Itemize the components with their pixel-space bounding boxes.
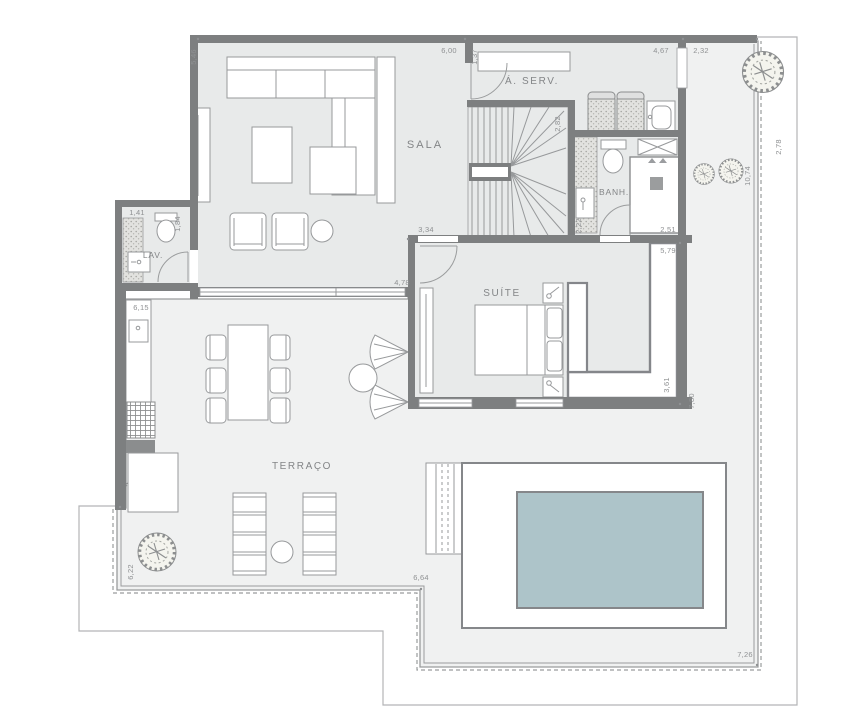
- tree-icon: [742, 51, 783, 92]
- room-label-sala: SALA: [407, 139, 443, 151]
- dim-5-79: 5,79: [660, 246, 675, 255]
- shower-icon: [630, 157, 680, 233]
- room-label-lav: LAV.: [143, 250, 163, 260]
- toilet-icon: [603, 149, 623, 173]
- wall-suite-left: [408, 242, 415, 409]
- dim-10-74: 10,74: [743, 166, 752, 186]
- lounger-table-icon: [271, 541, 293, 563]
- dim-1-84: 1,84: [173, 216, 182, 231]
- shelf-counter: [478, 52, 570, 71]
- room-label-terraco: TERRAÇO: [272, 461, 332, 472]
- bush-icon: [719, 159, 743, 183]
- sofa-icon: [227, 57, 375, 98]
- dim-6-64: 6,64: [413, 573, 428, 582]
- dim-7-26: 7,26: [737, 650, 752, 659]
- dim-3-34: 3,34: [418, 225, 433, 234]
- dim-2-51: 2,51: [660, 225, 675, 234]
- outdoor-sink-icon: [129, 320, 148, 342]
- dresser-icon: [568, 283, 587, 372]
- pool: [517, 492, 703, 608]
- dim-2-22: 2,22: [574, 218, 583, 233]
- dim-4-67: 4,67: [653, 46, 668, 55]
- dim-7-80: 7,80: [687, 393, 696, 408]
- tree-icon: [138, 533, 176, 571]
- lounger-icon: [303, 493, 336, 575]
- pillow-icon: [547, 341, 562, 371]
- dryer-icon: [617, 99, 644, 131]
- dim-6-15: 6,15: [133, 303, 148, 312]
- coffee-table-icon: [252, 127, 292, 183]
- lounger-icon: [233, 493, 266, 575]
- wall-terrace-left: [115, 283, 126, 510]
- floor-plan-canvas: SALA Á. SERV. BANH. LAV. SUÍTE TERRAÇO 5…: [0, 0, 847, 720]
- counter-end-block: [126, 440, 155, 453]
- sofa-side-console: [377, 57, 395, 203]
- dim-1-37: 1,37: [470, 49, 479, 64]
- outdoor-counter: [126, 300, 151, 402]
- dim-3-61: 3,61: [662, 377, 671, 392]
- terrace-door: [677, 48, 687, 88]
- dim-6-00: 6,00: [441, 46, 456, 55]
- dim-2-32: 2,32: [693, 46, 708, 55]
- wall-suite-right: [677, 235, 687, 409]
- side-table-icon: [311, 220, 333, 242]
- pouf-icon: [310, 147, 356, 194]
- dim-1-41: 1,41: [129, 208, 144, 217]
- washer-icon: [588, 99, 615, 131]
- nightstand-icon: [543, 283, 563, 303]
- island-table-icon: [128, 453, 178, 512]
- dining-table-icon: [228, 325, 268, 420]
- wall-top: [190, 35, 757, 43]
- bush-icon: [694, 164, 715, 185]
- bath-sink-icon: [576, 188, 594, 218]
- grill-icon: [127, 402, 155, 438]
- dim-5-46: 5,46: [189, 49, 198, 64]
- floor-plan-page: SALA Á. SERV. BANH. LAV. SUÍTE TERRAÇO 5…: [0, 0, 847, 720]
- dim-6-22: 6,22: [126, 564, 135, 579]
- pillow-icon: [547, 308, 562, 338]
- room-label-suite: SUÍTE: [483, 286, 520, 299]
- pool-area: [426, 463, 726, 628]
- dim-4-78: 4,78: [394, 278, 409, 287]
- room-label-aserv: Á. SERV.: [505, 74, 559, 87]
- round-table-icon: [349, 364, 377, 392]
- room-label-banh: BANH.: [599, 187, 629, 197]
- pool-deck-steps: [426, 463, 462, 554]
- dim-2-82: 2,82: [553, 116, 562, 131]
- dim-2-78: 2,78: [774, 139, 783, 154]
